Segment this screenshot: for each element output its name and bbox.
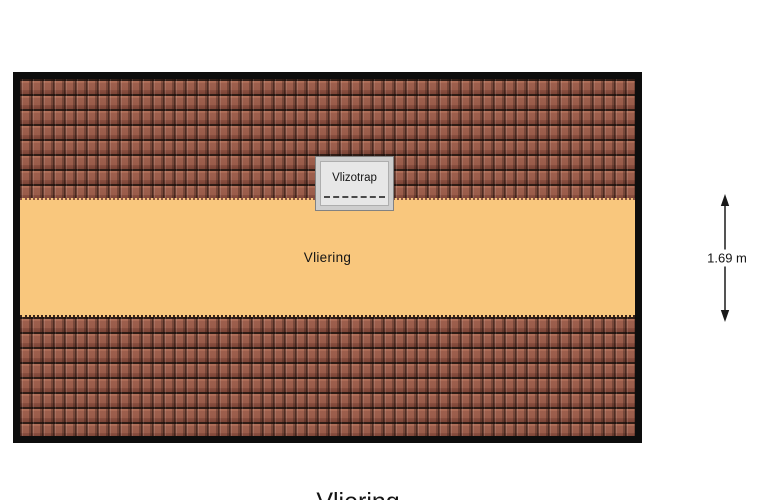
dimension-label: 1.69 m: [705, 250, 749, 267]
roof-hatching-bottom: [20, 317, 635, 436]
floorplan-page: Vliering Vlizotrap 1.69 m Vliering: [0, 0, 760, 500]
room-vliering: Vliering: [20, 198, 635, 317]
plan-caption: Vliering: [238, 488, 478, 500]
room-label: Vliering: [304, 250, 351, 265]
hatch-opening-dashed-line: [324, 196, 385, 198]
loft-hatch-label: Vlizotrap: [320, 172, 389, 184]
loft-hatch-box: Vlizotrap: [316, 157, 393, 210]
dimension-annotation: 1.69 m: [699, 193, 755, 323]
floor-plan: Vliering Vlizotrap: [13, 72, 642, 443]
